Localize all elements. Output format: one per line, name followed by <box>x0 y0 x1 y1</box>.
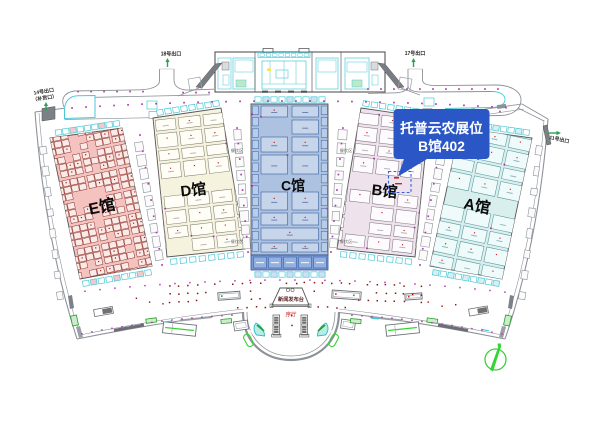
svg-text:餐饮区: 餐饮区 <box>231 147 244 154</box>
svg-text:B馆: B馆 <box>371 181 399 202</box>
svg-text:托普云农展位: 托普云农展位 <box>400 120 483 136</box>
svg-text:餐饮区: 餐饮区 <box>231 238 244 245</box>
svg-text:D馆: D馆 <box>180 180 208 201</box>
svg-text:餐饮区: 餐饮区 <box>340 147 353 154</box>
svg-text:序厅: 序厅 <box>285 311 297 319</box>
svg-text:18号出口: 18号出口 <box>161 51 182 58</box>
svg-text:17号出口: 17号出口 <box>405 50 426 57</box>
svg-text:B馆402: B馆402 <box>418 138 465 154</box>
svg-text:餐饮区: 餐饮区 <box>340 238 353 245</box>
svg-text:新闻发布台: 新闻发布台 <box>278 295 304 303</box>
svg-text:C馆: C馆 <box>281 178 305 194</box>
